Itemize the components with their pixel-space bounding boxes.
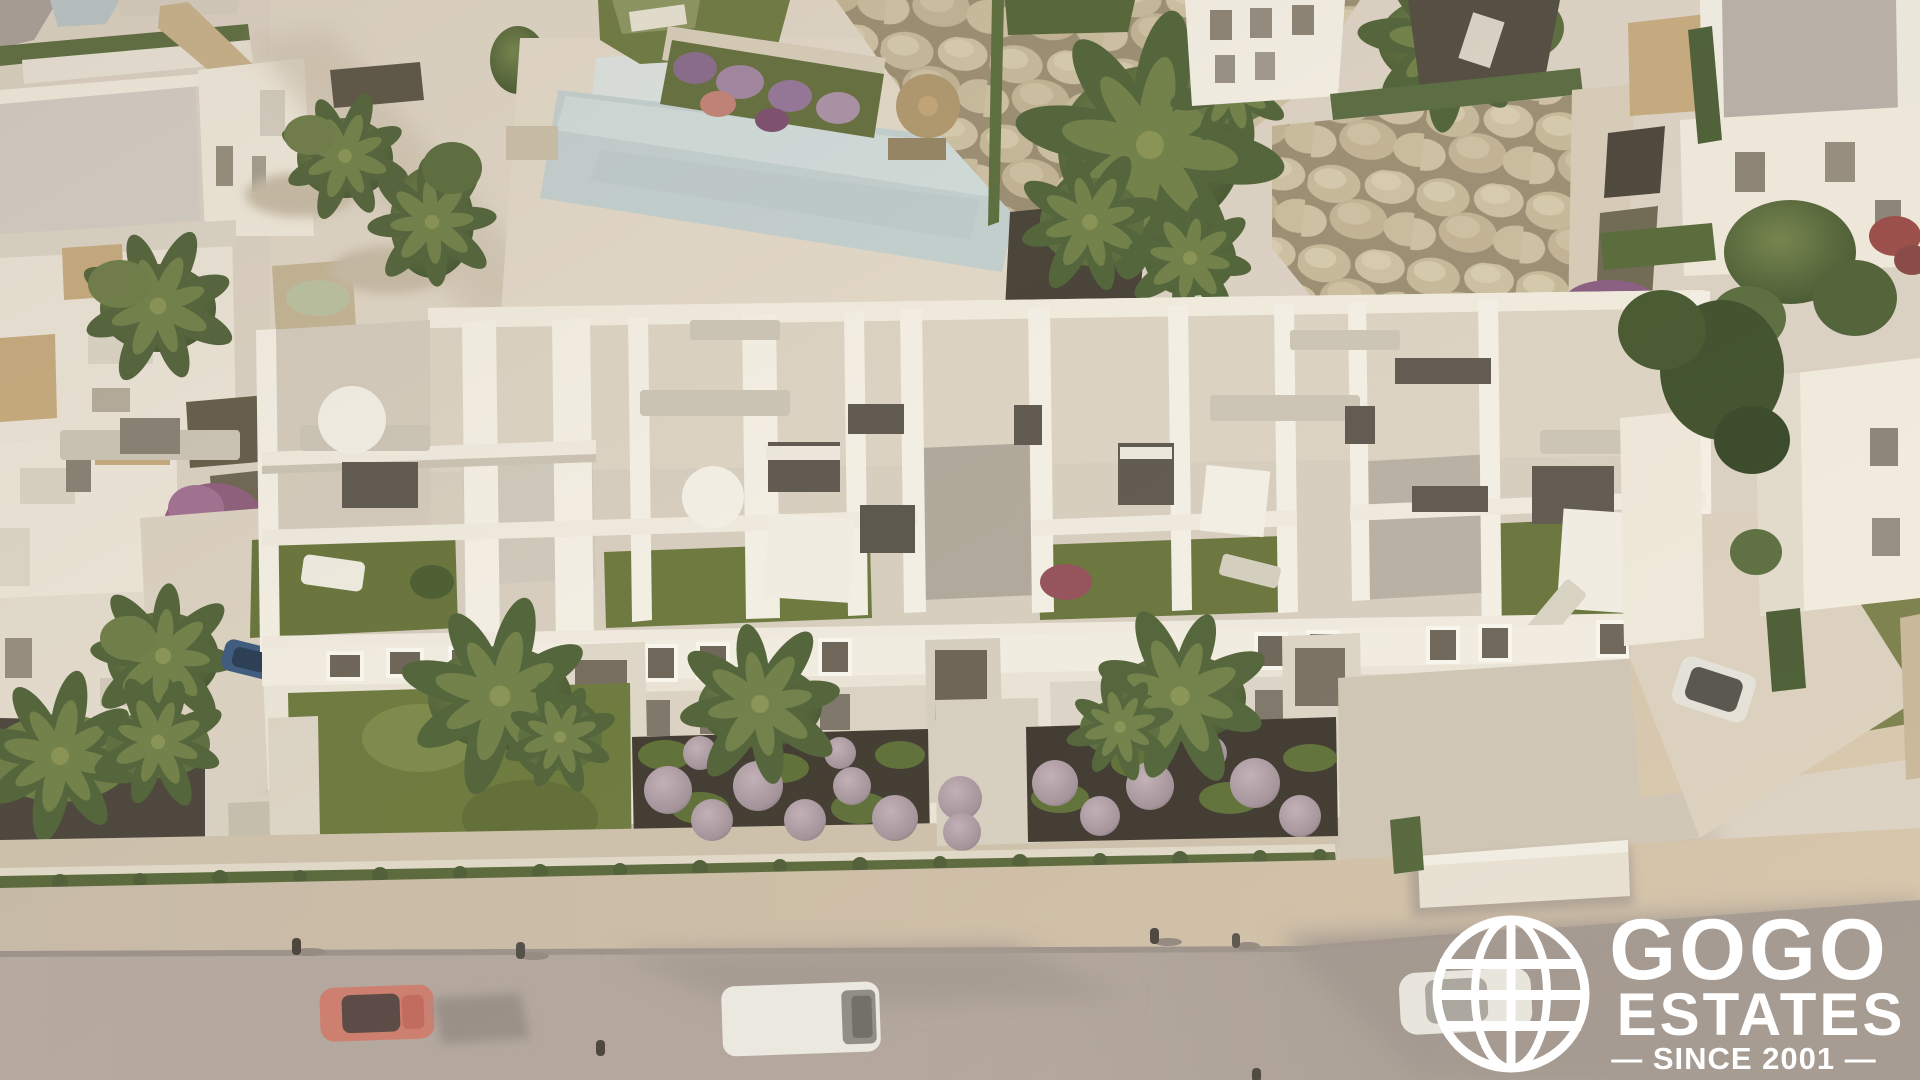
- svg-text:— SINCE 2001 —: — SINCE 2001 —: [1611, 1041, 1877, 1076]
- svg-text:ESTATES: ESTATES: [1617, 981, 1906, 1048]
